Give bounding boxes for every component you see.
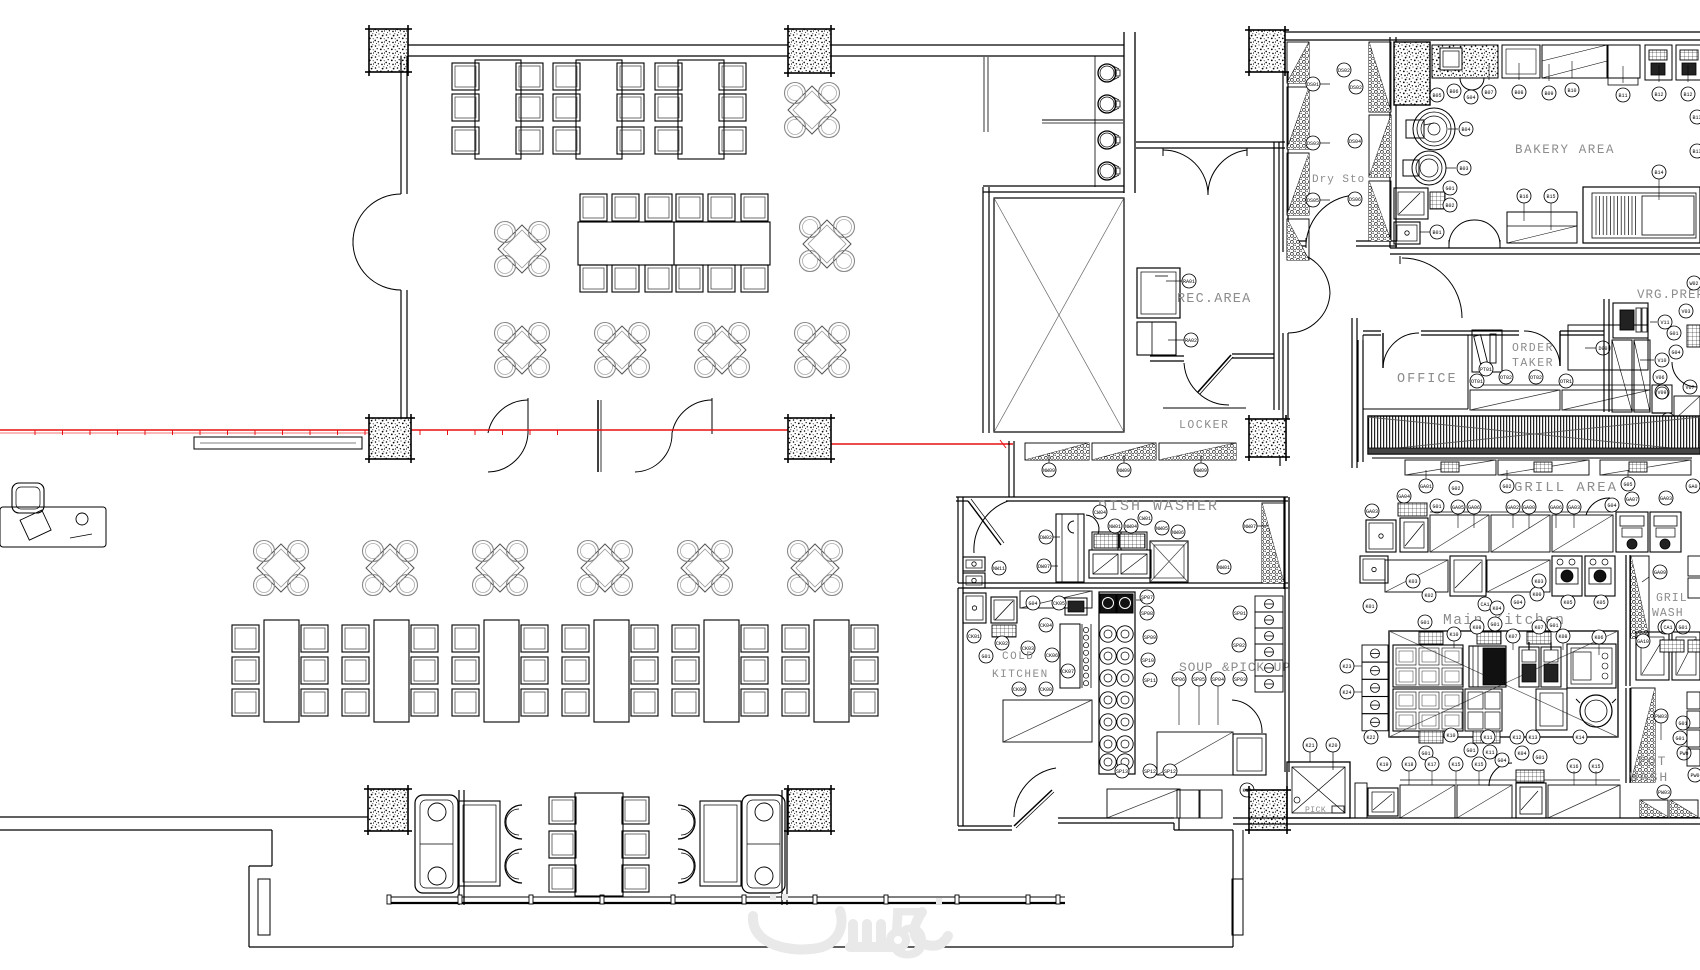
svg-text:G01: G01 [1490, 622, 1499, 628]
svg-text:SP04: SP04 [1212, 677, 1224, 683]
svg-text:K22: K22 [1366, 735, 1375, 741]
svg-text:GA10: GA10 [1637, 639, 1649, 645]
svg-text:GA03: GA03 [1660, 496, 1672, 502]
svg-text:K18: K18 [1404, 762, 1413, 768]
svg-text:B02: B02 [1445, 203, 1454, 209]
svg-text:GA00: GA00 [1523, 505, 1535, 511]
svg-text:G04: G04 [1671, 350, 1680, 356]
svg-text:K05: K05 [1596, 600, 1605, 606]
svg-text:NW11: NW11 [993, 566, 1005, 572]
svg-text:CK06: CK06 [1046, 653, 1058, 659]
svg-text:CK07: CK07 [1062, 669, 1074, 675]
svg-text:K07: K07 [1534, 625, 1543, 631]
svg-text:PICK: PICK [1305, 806, 1326, 815]
svg-text:REC.AREA: REC.AREA [1177, 292, 1251, 307]
svg-text:B13: B13 [1692, 115, 1700, 121]
svg-text:K12: K12 [1512, 735, 1521, 741]
svg-text:NW04: NW04 [1125, 524, 1137, 530]
svg-text:K20: K20 [1328, 743, 1337, 749]
svg-text:NW06: NW06 [1172, 530, 1184, 536]
svg-text:NW09: NW09 [1118, 468, 1130, 474]
svg-text:B04: B04 [1461, 127, 1470, 133]
svg-text:K01: K01 [1365, 604, 1374, 610]
svg-text:NW01: NW01 [1218, 565, 1230, 571]
svg-text:CK01: CK01 [968, 634, 980, 640]
svg-text:K08: K08 [1558, 634, 1567, 640]
svg-text:GA04: GA04 [1398, 494, 1410, 500]
svg-text:GA07: GA07 [1626, 497, 1638, 503]
svg-text:SP05: SP05 [1193, 677, 1205, 683]
svg-text:G01: G01 [1466, 748, 1475, 754]
svg-text:SP11: SP11 [1144, 678, 1156, 684]
svg-text:G05: G05 [1623, 482, 1632, 488]
svg-text:V06: V06 [1655, 375, 1664, 381]
svg-text:ORDER: ORDER [1512, 342, 1554, 355]
svg-text:PW03: PW03 [1658, 790, 1670, 796]
svg-text:B08: B08 [1514, 90, 1523, 96]
svg-text:G01: G01 [981, 654, 990, 660]
svg-text:K08: K08 [1472, 625, 1481, 631]
svg-text:K17: K17 [1427, 762, 1436, 768]
svg-text:TAKER: TAKER [1512, 357, 1554, 370]
svg-text:WASH: WASH [1652, 607, 1684, 620]
svg-text:B11: B11 [1618, 93, 1627, 99]
svg-text:LOCKER: LOCKER [1179, 419, 1229, 432]
svg-text:SP10: SP10 [1142, 658, 1154, 664]
svg-text:COLD: COLD [1002, 651, 1034, 663]
svg-text:K16: K16 [1569, 764, 1578, 770]
svg-text:PT01: PT01 [1480, 367, 1492, 373]
svg-text:K04: K04 [1517, 751, 1526, 757]
svg-text:CW01: CW01 [1139, 516, 1151, 522]
svg-text:K14: K14 [1575, 735, 1584, 741]
svg-text:B14: B14 [1654, 170, 1663, 176]
svg-text:RA02: RA02 [1185, 338, 1197, 344]
svg-text:5: 5 [888, 894, 928, 970]
svg-text:NW07: NW07 [1244, 524, 1256, 530]
svg-text:V09: V09 [1657, 390, 1666, 396]
svg-text:BAKERY AREA: BAKERY AREA [1515, 143, 1615, 157]
svg-text:NW05: NW05 [1156, 526, 1168, 532]
svg-text:B07: B07 [1484, 90, 1493, 96]
svg-text:PW03: PW03 [1655, 714, 1667, 720]
svg-text:SP12: SP12 [1164, 769, 1176, 775]
svg-text:G02: G02 [1502, 484, 1511, 490]
svg-text:NW01: NW01 [1109, 524, 1121, 530]
svg-text:SP08: SP08 [1141, 611, 1153, 617]
svg-text:K15: K15 [1451, 762, 1460, 768]
svg-text:DW02: DW02 [1040, 535, 1052, 541]
svg-text:VRG.PREP: VRG.PREP [1637, 288, 1700, 302]
svg-text:GA06: GA06 [1468, 505, 1480, 511]
svg-text:K10: K10 [1446, 733, 1455, 739]
svg-text:K23: K23 [1342, 664, 1351, 670]
svg-text:G01: G01 [1678, 625, 1687, 631]
svg-text:K15: K15 [1474, 762, 1483, 768]
svg-text:DS03: DS03 [1307, 141, 1319, 147]
svg-text:CK09: CK09 [1013, 687, 1025, 693]
svg-text:SP02: SP02 [1233, 643, 1245, 649]
svg-text:K21: K21 [1305, 743, 1314, 749]
svg-text:GA05: GA05 [1452, 505, 1464, 511]
svg-text:GA03: GA03 [1366, 509, 1378, 515]
svg-text:Dry Sto: Dry Sto [1312, 174, 1365, 186]
svg-text:GRIL: GRIL [1656, 592, 1688, 605]
svg-text:K04: K04 [1492, 606, 1501, 612]
svg-text:OT02: OT02 [1500, 375, 1512, 381]
svg-text:B03: B03 [1459, 166, 1468, 172]
svg-text:D00: D00 [1598, 346, 1607, 352]
svg-text:CA1: CA1 [1480, 602, 1489, 608]
svg-text:DISH WASHER: DISH WASHER [1098, 498, 1219, 515]
svg-text:K03: K03 [1534, 579, 1543, 585]
svg-text:V03: V03 [1681, 309, 1690, 315]
svg-text:B12: B12 [1654, 92, 1663, 98]
svg-text:SP13: SP13 [1116, 769, 1128, 775]
svg-text:V11: V11 [1660, 320, 1669, 326]
svg-text:K19: K19 [1379, 762, 1388, 768]
svg-text:DS01: DS01 [1307, 82, 1319, 88]
svg-text:B10: B10 [1567, 88, 1576, 94]
svg-text:GA0: GA0 [1688, 484, 1697, 490]
svg-text:K05: K05 [1563, 600, 1572, 606]
svg-text:DS02: DS02 [1350, 85, 1362, 91]
svg-text:DS06: DS06 [1349, 197, 1361, 203]
svg-text:DS02: DS02 [1338, 68, 1350, 74]
svg-text:K00: K00 [1532, 592, 1541, 598]
svg-text:B06: B06 [1449, 89, 1458, 95]
svg-text:GRILL AREA: GRILL AREA [1514, 480, 1618, 496]
svg-text:DS04: DS04 [1349, 139, 1361, 145]
svg-text:CK04: CK04 [1040, 623, 1052, 629]
svg-text:OFFICE: OFFICE [1397, 372, 1458, 387]
svg-text:B09: B09 [1544, 91, 1553, 97]
svg-text:G01: G01 [1678, 721, 1687, 727]
svg-text:NW09: NW09 [1195, 468, 1207, 474]
svg-text:DS05: DS05 [1307, 198, 1319, 204]
svg-text:GA03: GA03 [1568, 505, 1580, 511]
svg-text:G04: G04 [1028, 601, 1037, 607]
svg-text:NW09: NW09 [1043, 468, 1055, 474]
svg-text:RA01: RA01 [1183, 279, 1195, 285]
svg-text:CA1: CA1 [1663, 625, 1672, 631]
svg-text:B16: B16 [1519, 194, 1528, 200]
svg-text:SP12: SP12 [1144, 769, 1156, 775]
svg-text:V10: V10 [1657, 358, 1666, 364]
svg-text:B15: B15 [1546, 194, 1555, 200]
svg-text:GA06: GA06 [1550, 505, 1562, 511]
svg-text:CK08: CK08 [1040, 687, 1052, 693]
svg-text:G04: G04 [1607, 503, 1616, 509]
svg-text:DW07: DW07 [1038, 564, 1050, 570]
svg-text:G01: G01 [1535, 755, 1544, 761]
svg-text:K07: K07 [1508, 634, 1517, 640]
svg-text:G04: G04 [1466, 95, 1475, 101]
svg-text:B01: B01 [1432, 230, 1441, 236]
svg-text:KITCHEN: KITCHEN [992, 669, 1049, 681]
svg-text:CK05: CK05 [1053, 601, 1065, 607]
svg-text:WASH: WASH [1630, 770, 1669, 785]
svg-text:POT: POT [1638, 754, 1667, 769]
svg-text:CW04: CW04 [1094, 510, 1106, 516]
svg-text:SP01: SP01 [1234, 611, 1246, 617]
svg-text:OT01: OT01 [1471, 379, 1483, 385]
svg-text:OTR1: OTR1 [1560, 379, 1572, 385]
svg-text:B13: B13 [1692, 149, 1700, 155]
svg-text:GA09: GA09 [1654, 570, 1666, 576]
svg-text:K06: K06 [1594, 635, 1603, 641]
svg-text:K03: K03 [1408, 579, 1417, 585]
svg-text:OT02: OT02 [1530, 375, 1542, 381]
svg-text:G04: G04 [1497, 758, 1506, 764]
svg-text:K10: K10 [1449, 632, 1458, 638]
svg-text:G02: G02 [1451, 486, 1460, 492]
svg-text:SP09: SP09 [1144, 635, 1156, 641]
svg-text:GA01: GA01 [1420, 484, 1432, 490]
svg-text:GA02: GA02 [1507, 505, 1519, 511]
svg-text:K11: K11 [1485, 750, 1494, 756]
svg-text:G01: G01 [1421, 751, 1430, 757]
svg-text:G01: G01 [1445, 186, 1454, 192]
svg-text:PW0: PW0 [1690, 773, 1699, 779]
svg-text:K13: K13 [1528, 735, 1537, 741]
svg-text:K02: K02 [1424, 593, 1433, 599]
svg-text:G01: G01 [1432, 504, 1441, 510]
svg-text:SP03: SP03 [1234, 677, 1246, 683]
svg-text:G01: G01 [1420, 620, 1429, 626]
svg-text:G01: G01 [1675, 736, 1684, 742]
svg-text:B05: B05 [1432, 93, 1441, 99]
svg-text:K24: K24 [1342, 690, 1351, 696]
svg-text:SP06: SP06 [1173, 677, 1185, 683]
svg-text:G01: G01 [1549, 623, 1558, 629]
svg-text:G04: G04 [1513, 600, 1522, 606]
svg-text:K11: K11 [1483, 735, 1492, 741]
svg-text:CK02: CK02 [996, 641, 1008, 647]
svg-text:W02: W02 [1689, 281, 1698, 287]
svg-text:G01: G01 [1669, 331, 1678, 337]
svg-text:K15: K15 [1591, 764, 1600, 770]
svg-text:B12: B12 [1683, 92, 1692, 98]
